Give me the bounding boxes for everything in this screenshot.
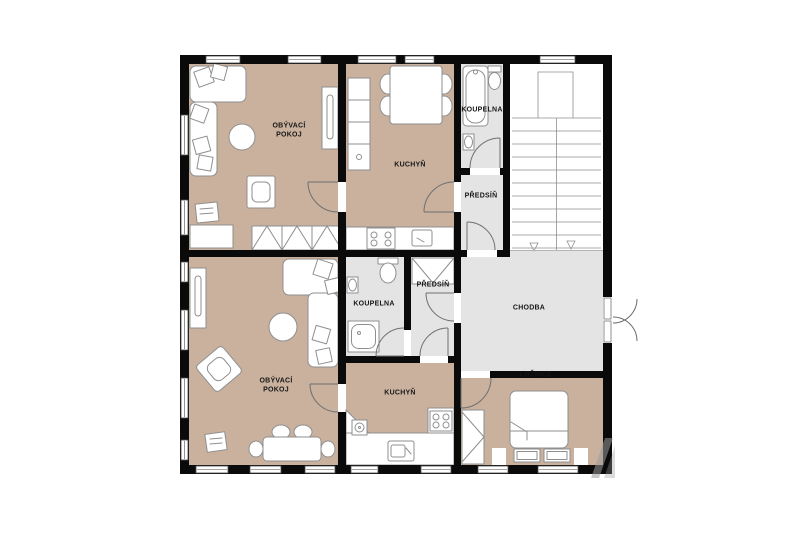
wall — [338, 412, 346, 465]
nightstand-top — [517, 452, 537, 460]
wall — [454, 323, 461, 465]
wall — [500, 168, 503, 175]
chair — [249, 441, 263, 457]
wall — [603, 55, 612, 297]
cabinet — [190, 225, 233, 248]
kitchen-counter — [348, 122, 370, 144]
coffee-table — [229, 124, 255, 150]
sink-basin — [465, 136, 473, 148]
window — [478, 466, 508, 473]
window — [538, 466, 578, 473]
floor-plan-drawing — [0, 0, 800, 533]
toilet — [380, 263, 396, 283]
window — [181, 440, 188, 460]
bathtub-basin — [466, 70, 485, 123]
window — [405, 56, 434, 63]
toilet — [489, 73, 501, 90]
wall — [503, 64, 510, 250]
window — [305, 466, 335, 473]
kitchen-counter — [348, 100, 370, 122]
wall — [346, 250, 467, 257]
kitchen-sink — [412, 230, 432, 246]
window — [421, 466, 451, 473]
pillow — [192, 136, 210, 154]
fridge — [352, 420, 367, 435]
window — [250, 466, 281, 473]
window-sill — [574, 448, 588, 465]
entry-hall-2-furniture — [412, 258, 454, 284]
wall — [448, 356, 454, 363]
pillow — [197, 155, 213, 171]
wall — [497, 250, 510, 257]
wall — [454, 64, 461, 182]
wall — [346, 356, 420, 363]
window — [206, 56, 240, 63]
chair — [321, 441, 335, 457]
tv — [327, 95, 333, 139]
wall — [338, 212, 346, 384]
wardrobe — [312, 226, 342, 250]
door-leaf — [604, 321, 611, 342]
nightstand-top — [547, 452, 567, 460]
window — [181, 378, 188, 418]
wall — [338, 64, 346, 182]
wall — [490, 371, 603, 378]
sink-basin — [349, 279, 357, 291]
desk — [205, 432, 227, 453]
window — [540, 56, 575, 63]
window — [358, 56, 396, 63]
kitchen-counter — [348, 78, 370, 100]
tv — [195, 276, 201, 316]
dining-table — [263, 437, 321, 461]
toilet-tank — [488, 66, 501, 72]
stove — [430, 411, 452, 431]
entrance-double-door — [604, 298, 637, 342]
dining-table — [390, 66, 442, 124]
wardrobe — [462, 410, 484, 464]
wall — [461, 168, 470, 175]
window — [181, 310, 188, 350]
floor-plan-image: OBÝVACÍ POKOJ KUCHYŇ KOUPELNA PŘEDSÍŇ CH… — [0, 0, 800, 533]
window — [181, 262, 188, 282]
window — [351, 466, 378, 473]
fridge — [348, 144, 370, 170]
window — [181, 200, 188, 235]
kitchen-counter — [346, 227, 454, 250]
window-sill — [492, 448, 506, 465]
armchair-seat — [252, 182, 270, 202]
desk — [195, 202, 219, 223]
stove — [367, 228, 395, 249]
wall — [189, 250, 338, 257]
wardrobe — [412, 258, 454, 284]
coffee-table — [269, 313, 297, 341]
pillow — [316, 348, 333, 365]
window — [181, 115, 188, 155]
shower-tray — [352, 325, 376, 349]
window — [288, 56, 321, 63]
wardrobe — [252, 226, 282, 250]
wall — [404, 257, 411, 330]
bed — [510, 391, 568, 448]
wardrobe — [282, 226, 312, 250]
wall — [454, 212, 461, 293]
door-leaf — [604, 298, 611, 319]
sink-basin — [391, 445, 405, 457]
corridor-floor — [461, 250, 603, 371]
pillow — [210, 63, 227, 80]
window — [196, 466, 228, 473]
